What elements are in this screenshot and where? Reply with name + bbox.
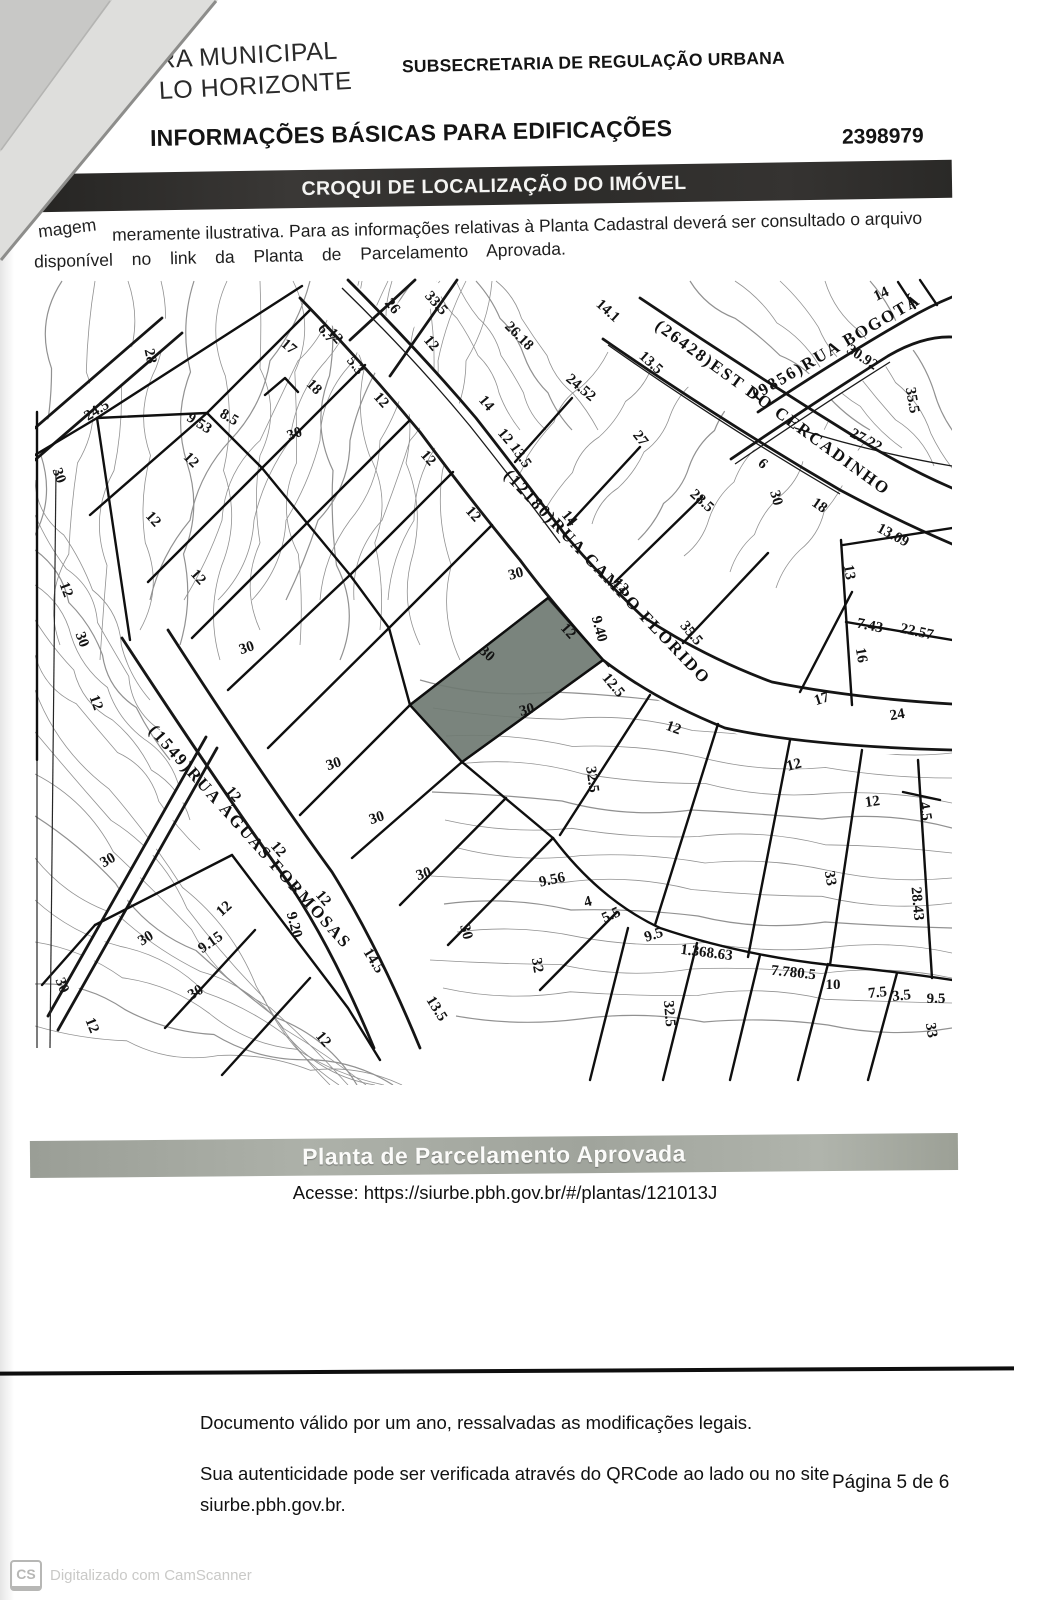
dimension-label: 18 <box>303 376 325 398</box>
dimension-label: 12 <box>370 389 392 411</box>
dimension-label: 4.5 <box>915 801 934 822</box>
dimension-label: 33 <box>922 1022 940 1040</box>
dimension-label: 12 <box>785 756 803 775</box>
qr-code <box>52 1398 180 1526</box>
dimension-label: 12 <box>86 693 106 713</box>
dimension-label: 28 <box>141 347 160 365</box>
camscanner-text: Digitalizado com CamScanner <box>50 1567 252 1584</box>
dimension-label: 30 <box>237 638 256 658</box>
dimension-label: 30 <box>456 923 475 942</box>
dimension-label: 7.43 <box>855 616 884 637</box>
dimension-label: 30 <box>135 928 156 950</box>
dimension-label: 30 <box>49 466 69 486</box>
dimension-label: 26.18 <box>501 319 536 354</box>
dimension-label: 14.1 <box>593 296 623 325</box>
validity-text: Documento válido por um ano, ressalvadas… <box>200 1412 752 1434</box>
dimension-label: 12 <box>180 449 202 471</box>
plate-bar: Planta de Parcelamento Aprovada <box>30 1133 958 1178</box>
dimension-label: 3.5 <box>891 987 911 1005</box>
dimension-label: 7.780.5 <box>770 963 816 984</box>
department-title: SUBSECRETARIA DE REGULAÇÃO URBANA <box>402 48 785 78</box>
dimension-label: 13.09 <box>874 520 911 550</box>
dimension-label: 32 <box>528 957 546 975</box>
camscanner-icon: CS <box>10 1560 42 1591</box>
dimension-label: 28.43 <box>908 886 927 921</box>
dimension-label: 27 <box>629 428 651 450</box>
dimension-label: 32.5 <box>660 1000 678 1028</box>
dimension-label: 32.5 <box>582 765 601 793</box>
dimension-label: 9.20 <box>283 910 305 939</box>
section-bar-label: CROQUI DE LOCALIZAÇÃO DO IMÓVEL <box>301 171 686 200</box>
dimension-label: 14 <box>475 393 497 415</box>
dimension-label: 7.5 <box>867 984 887 1002</box>
dimension-label: 33 <box>821 870 839 888</box>
authenticity-line1: Sua autenticidade pode ser verificada at… <box>200 1458 829 1489</box>
access-url: Acesse: https://siurbe.pbh.gov.br/#/plan… <box>0 1182 1010 1204</box>
dimension-label: 22.57 <box>899 621 936 644</box>
dimension-label: 9.15 <box>195 929 226 957</box>
dimension-label: 12 <box>56 580 76 600</box>
dimension-label: 9.5 <box>927 991 946 1007</box>
plate-bar-label: Planta de Parcelamento Aprovada <box>302 1140 686 1170</box>
dimension-label: 30 <box>367 808 386 828</box>
dimension-label: 12 <box>420 333 442 355</box>
dimension-label: 35.5 <box>902 386 922 415</box>
footer-rule <box>0 1366 1014 1375</box>
dimension-label: 30 <box>324 754 343 774</box>
dimension-label: 24.52 <box>563 371 599 405</box>
camscanner-mark: CS Digitalizado com CamScanner <box>10 1560 252 1591</box>
dimension-label: 12 <box>187 566 209 588</box>
authenticity-line2: siurbe.pbh.gov.br. <box>200 1489 829 1520</box>
dimension-label: 13 <box>840 564 858 582</box>
dimension-label: 13.5 <box>423 994 450 1025</box>
document-number: 2398979 <box>842 124 924 150</box>
dimension-label: 16 <box>852 647 870 665</box>
dimension-label: 12 <box>142 508 164 530</box>
dimension-label: 9.56 <box>538 869 567 890</box>
scanned-page: RA MUNICIPAL LO HORIZONTE SUBSECRETARIA … <box>0 0 1043 1600</box>
dimension-label: 30 <box>414 864 433 884</box>
dimension-label: 5.5 <box>599 904 623 926</box>
dimension-label: 12 <box>664 718 684 738</box>
cadastral-map: (12180)RUA CAMPO FLORIDO(26428)EST DO CE… <box>35 278 952 1085</box>
dimension-label: 10 <box>826 977 841 993</box>
dimension-label: 12 <box>864 793 881 811</box>
dimension-label: 12 <box>312 1029 334 1051</box>
dimension-label: 12 <box>213 898 235 920</box>
dimension-label: 4 <box>582 893 594 911</box>
dimension-label: 30 <box>766 489 785 508</box>
dimension-label: 12 <box>81 1016 101 1036</box>
dimension-label: 18 <box>809 495 830 517</box>
authenticity-text: Sua autenticidade pode ser verificada at… <box>200 1458 829 1520</box>
page-fold-edge <box>0 0 240 320</box>
dimension-label: 6 <box>755 455 771 472</box>
page-number: Página 5 de 6 <box>832 1472 949 1494</box>
dimension-label: 1.368.63 <box>679 942 733 964</box>
